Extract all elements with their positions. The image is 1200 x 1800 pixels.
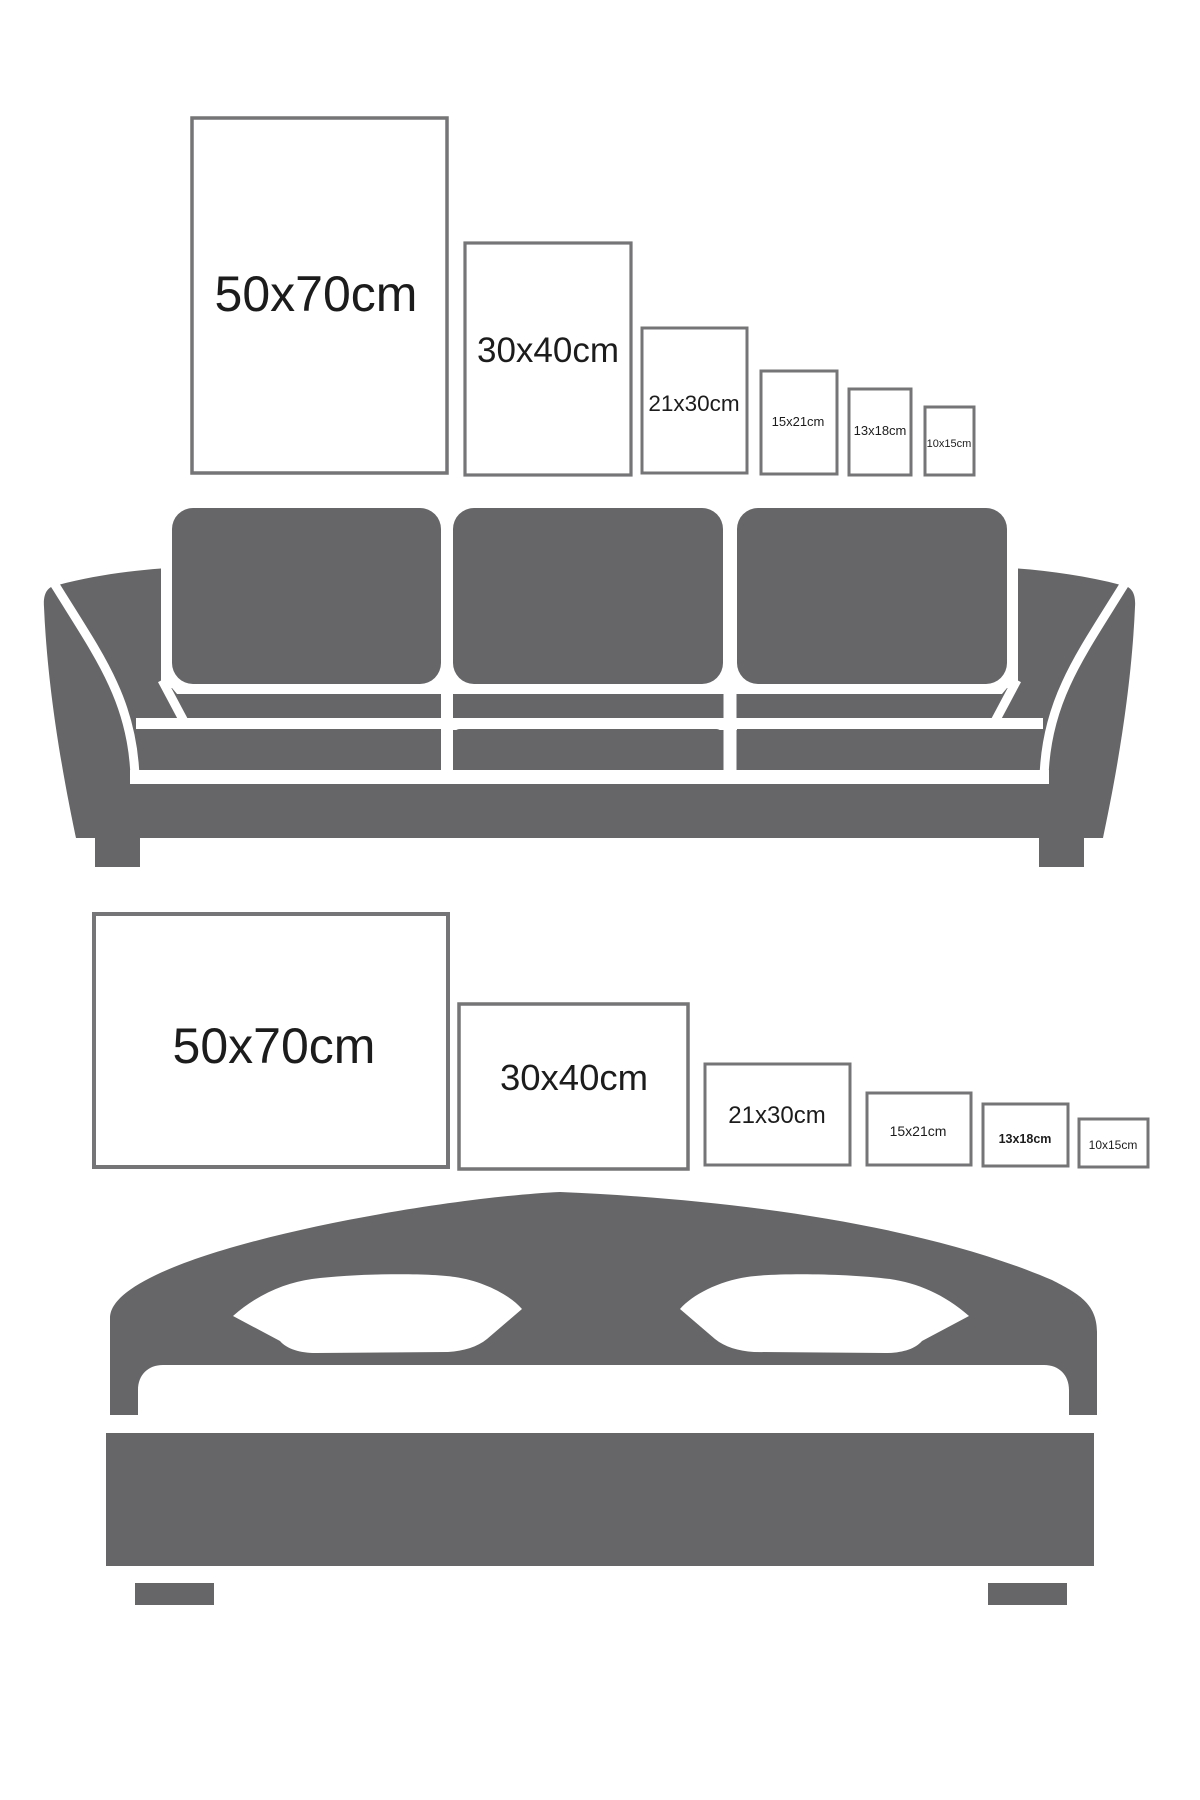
- svg-text:21x30cm: 21x30cm: [648, 391, 739, 416]
- svg-text:21x30cm: 21x30cm: [728, 1102, 825, 1129]
- svg-text:30x40cm: 30x40cm: [477, 331, 619, 370]
- svg-text:13x18cm: 13x18cm: [999, 1132, 1052, 1146]
- svg-text:50x70cm: 50x70cm: [215, 266, 418, 322]
- svg-text:50x70cm: 50x70cm: [173, 1018, 376, 1074]
- svg-text:15x21cm: 15x21cm: [772, 414, 825, 429]
- svg-text:30x40cm: 30x40cm: [500, 1057, 648, 1098]
- svg-text:15x21cm: 15x21cm: [890, 1123, 947, 1139]
- svg-text:13x18cm: 13x18cm: [854, 423, 907, 438]
- svg-text:10x15cm: 10x15cm: [927, 438, 972, 450]
- svg-text:10x15cm: 10x15cm: [1089, 1138, 1138, 1152]
